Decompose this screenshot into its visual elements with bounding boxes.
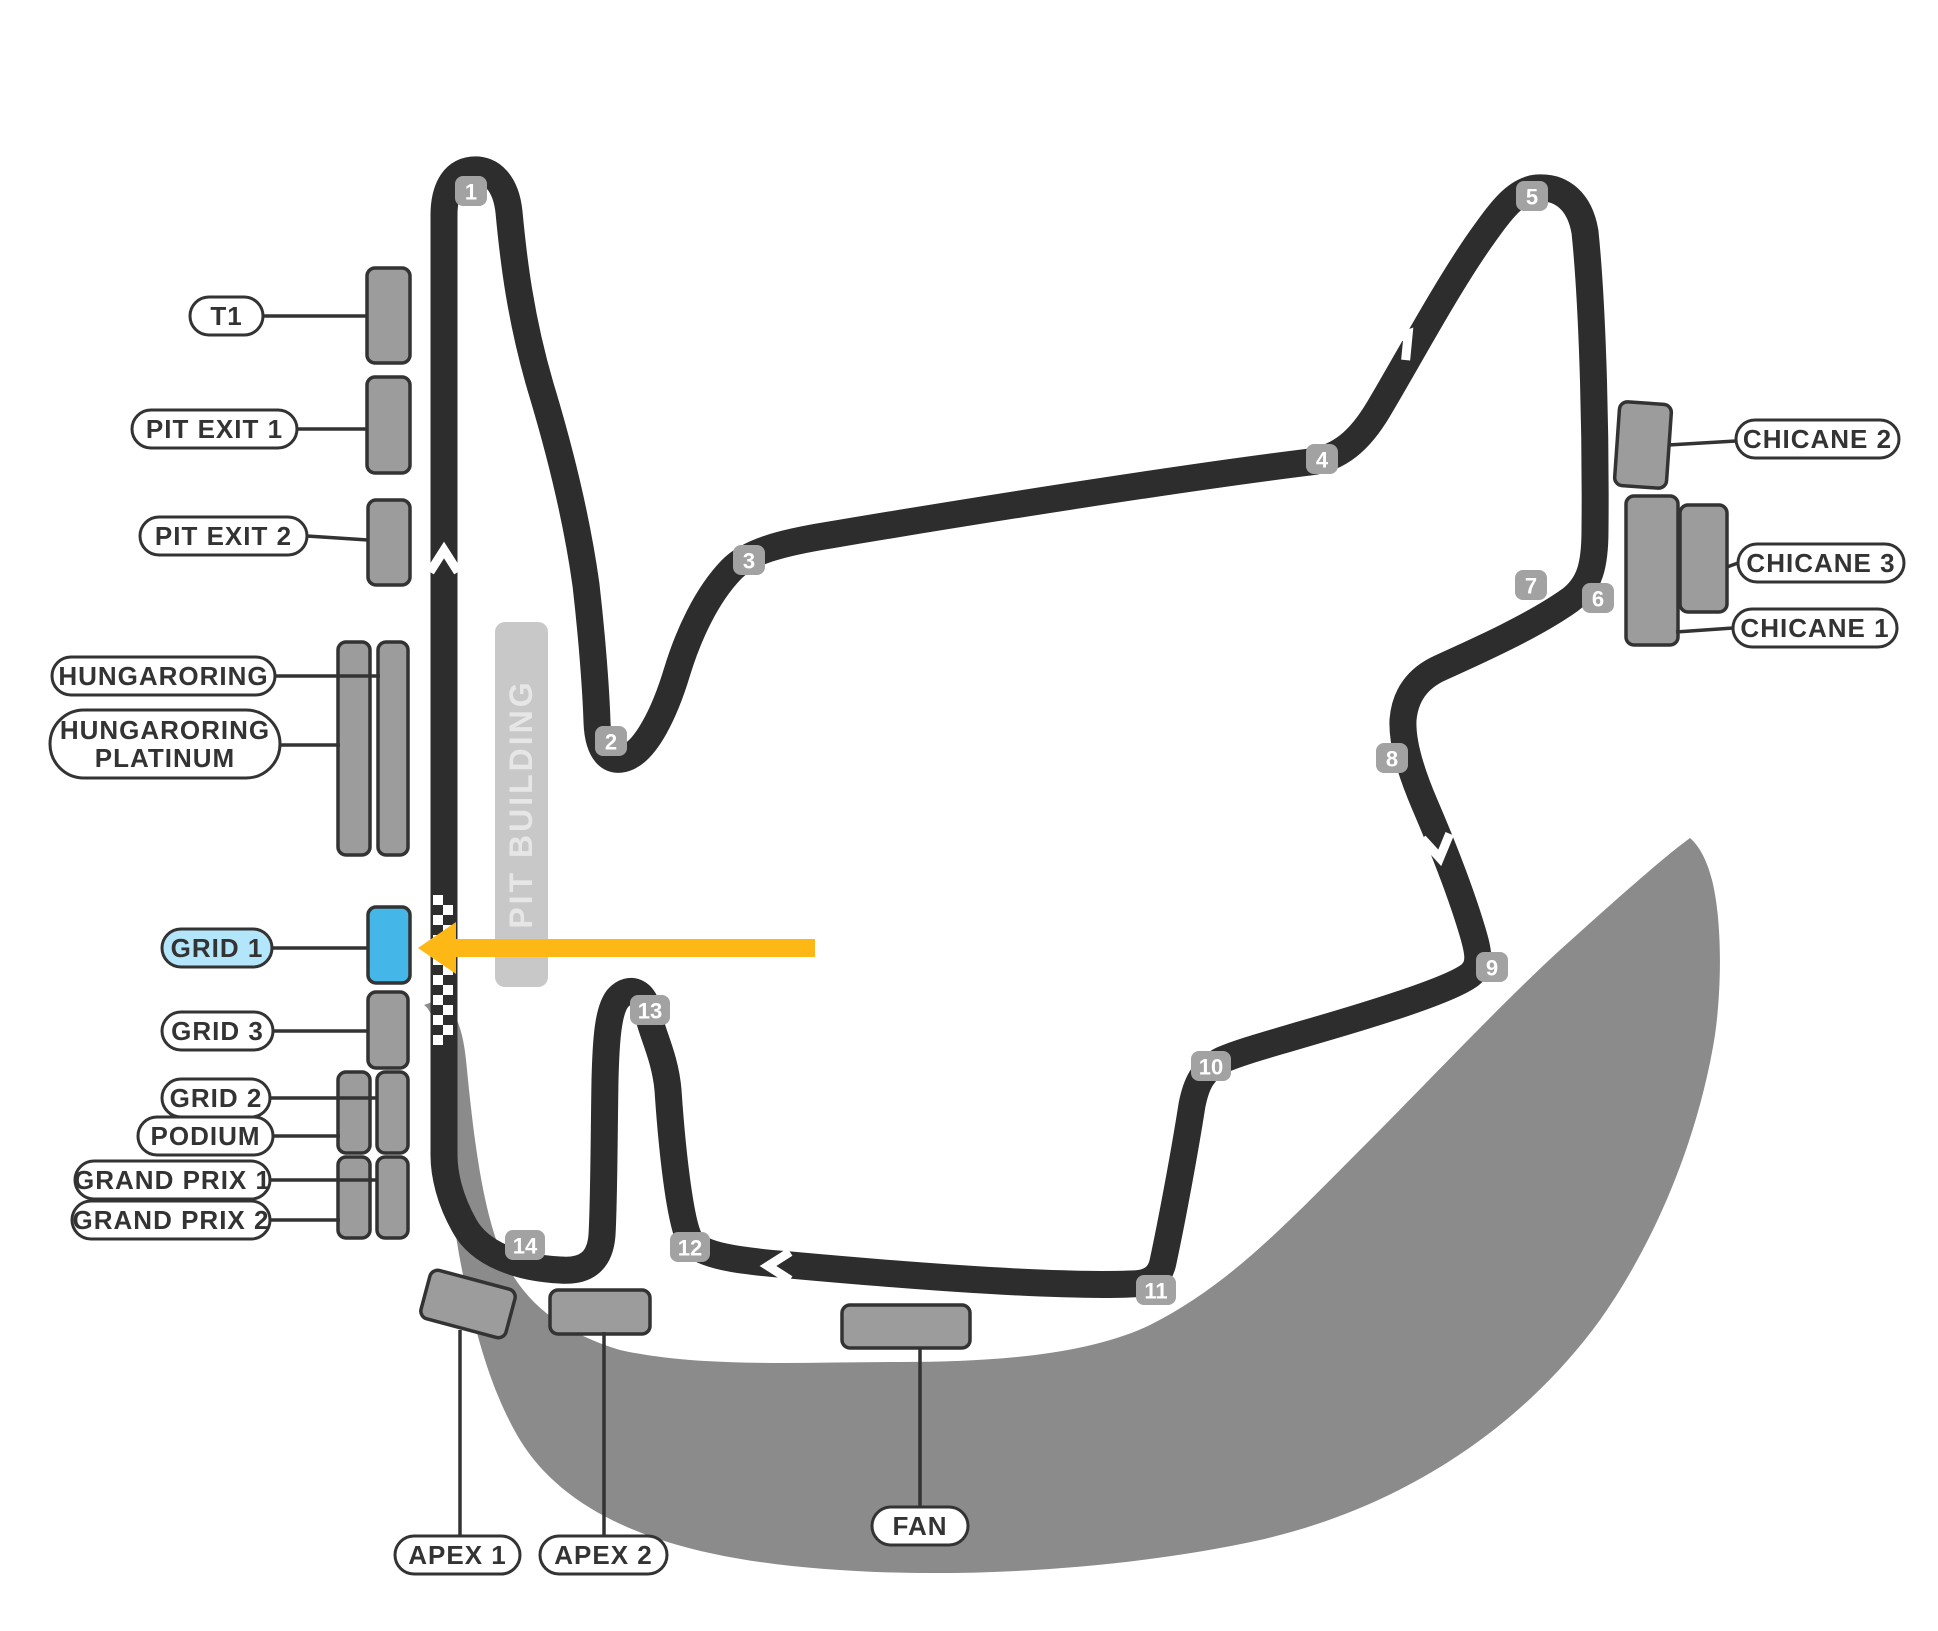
turn-marker-number: 4 <box>1316 448 1329 473</box>
label-text-podium: PODIUM <box>151 1121 261 1151</box>
turn-marker-number: 5 <box>1526 185 1538 210</box>
turn-marker-3: 3 <box>733 545 765 575</box>
label-text-grand-prix-1: GRAND PRIX 1 <box>74 1165 271 1195</box>
label-text-apex-2: APEX 2 <box>554 1540 653 1570</box>
start-finish-line <box>433 895 453 1045</box>
grandstand-t1[interactable] <box>367 268 410 363</box>
turn-marker-12: 12 <box>670 1232 710 1262</box>
turn-marker-number: 3 <box>743 549 755 574</box>
turn-marker-number: 13 <box>638 999 662 1024</box>
grandstand-apex-2[interactable] <box>550 1290 650 1334</box>
label-text-chicane-2: CHICANE 2 <box>1743 424 1892 454</box>
grandstand-grid-2[interactable] <box>377 1072 408 1153</box>
label-pill-chicane-3[interactable]: CHICANE 3 <box>1738 544 1904 582</box>
grandstand-hungaroring[interactable] <box>378 642 408 855</box>
turn-marker-number: 9 <box>1486 956 1498 981</box>
grandstand-grand-prix-2[interactable] <box>338 1157 370 1238</box>
label-text-t1: T1 <box>210 301 242 331</box>
turn-marker-number: 7 <box>1525 574 1537 599</box>
label-text-hungaroring: HUNGARORING <box>58 661 268 691</box>
label-text-fan: FAN <box>893 1511 948 1541</box>
label-text-pit-exit-1: PIT EXIT 1 <box>146 414 283 444</box>
grandstand-pit-exit-2[interactable] <box>368 500 410 585</box>
grandstand-pit-exit-1[interactable] <box>367 377 410 473</box>
turn-marker-8: 8 <box>1376 743 1408 773</box>
turn-marker-number: 8 <box>1386 747 1398 772</box>
label-pill-pit-exit-2[interactable]: PIT EXIT 2 <box>140 517 307 555</box>
selected-stand-arrow-icon <box>418 922 815 974</box>
turn-marker-10: 10 <box>1191 1051 1231 1081</box>
turn-marker-11: 11 <box>1136 1275 1176 1305</box>
turn-marker-14: 14 <box>505 1230 545 1260</box>
label-text-grand-prix-2: GRAND PRIX 2 <box>73 1205 270 1235</box>
label-pill-t1[interactable]: T1 <box>190 297 263 335</box>
label-pill-pit-exit-1[interactable]: PIT EXIT 1 <box>132 410 297 448</box>
turn-marker-4: 4 <box>1306 444 1338 474</box>
label-text-pit-exit-2: PIT EXIT 2 <box>155 521 292 551</box>
turn-marker-2: 2 <box>595 726 627 756</box>
grandstand-podium[interactable] <box>338 1072 370 1153</box>
grandstand-grand-prix-1[interactable] <box>377 1157 408 1238</box>
circuit-map: PIT BUILDING 1234567891011121314 T1PIT E… <box>0 0 1938 1631</box>
turn-marker-13: 13 <box>630 995 670 1025</box>
label-pill-apex-2[interactable]: APEX 2 <box>540 1536 667 1574</box>
grandstand-grid-1[interactable] <box>368 907 410 983</box>
label-pill-hungaroring-platinum[interactable]: HUNGARORINGPLATINUM <box>50 710 280 778</box>
label-pill-chicane-2[interactable]: CHICANE 2 <box>1736 420 1899 458</box>
turn-marker-number: 10 <box>1199 1055 1223 1080</box>
label-pill-grid-2[interactable]: GRID 2 <box>162 1079 270 1117</box>
leader-line-pit-exit-2 <box>307 536 368 540</box>
turn-marker-9: 9 <box>1476 952 1508 982</box>
label-pill-podium[interactable]: PODIUM <box>138 1117 273 1155</box>
label-pill-grand-prix-2[interactable]: GRAND PRIX 2 <box>72 1201 270 1239</box>
leader-line-chicane-2 <box>1668 441 1736 445</box>
turn-marker-number: 6 <box>1592 587 1604 612</box>
turn-marker-1: 1 <box>455 176 487 206</box>
label-pill-apex-1[interactable]: APEX 1 <box>395 1536 520 1574</box>
direction-chevron-icon <box>704 629 740 664</box>
pit-building-label: PIT BUILDING <box>503 679 539 928</box>
grandstand-chicane-2[interactable] <box>1614 401 1672 488</box>
turn-marker-number: 2 <box>605 730 617 755</box>
turn-marker-number: 14 <box>513 1234 538 1259</box>
label-pill-grid-3[interactable]: GRID 3 <box>162 1012 273 1050</box>
grandstand-fan[interactable] <box>842 1305 970 1348</box>
label-pill-grid-1[interactable]: GRID 1 <box>162 929 272 967</box>
label-pill-hungaroring[interactable]: HUNGARORING <box>52 657 275 695</box>
label-text-grid-2: GRID 2 <box>170 1083 263 1113</box>
grandstand-chicane-3[interactable] <box>1680 505 1727 612</box>
label-text-chicane-1: CHICANE 1 <box>1740 613 1889 643</box>
grandstand-hungaroring-platinum[interactable] <box>338 642 370 855</box>
grandstand-grid-3[interactable] <box>368 992 408 1068</box>
turn-marker-5: 5 <box>1516 181 1548 211</box>
label-text-grid-3: GRID 3 <box>171 1016 264 1046</box>
turn-marker-number: 11 <box>1144 1279 1167 1304</box>
label-text-hungaroring-platinum: HUNGARORING <box>60 715 270 745</box>
turn-marker-number: 1 <box>465 180 477 205</box>
grandstand-chicane-1[interactable] <box>1626 496 1678 645</box>
label-text-grid-1: GRID 1 <box>171 933 264 963</box>
turn-marker-number: 12 <box>678 1236 702 1261</box>
leader-line-chicane-1 <box>1676 628 1733 632</box>
label-pill-fan[interactable]: FAN <box>872 1507 968 1545</box>
label-pill-chicane-1[interactable]: CHICANE 1 <box>1733 609 1897 647</box>
pit-building: PIT BUILDING <box>495 622 548 987</box>
label-pill-grand-prix-1[interactable]: GRAND PRIX 1 <box>74 1161 271 1199</box>
turn-marker-6: 6 <box>1582 583 1614 613</box>
label-text-apex-1: APEX 1 <box>408 1540 507 1570</box>
label-text-hungaroring-platinum: PLATINUM <box>95 743 235 773</box>
turn-marker-7: 7 <box>1515 570 1547 600</box>
label-text-chicane-3: CHICANE 3 <box>1746 548 1895 578</box>
